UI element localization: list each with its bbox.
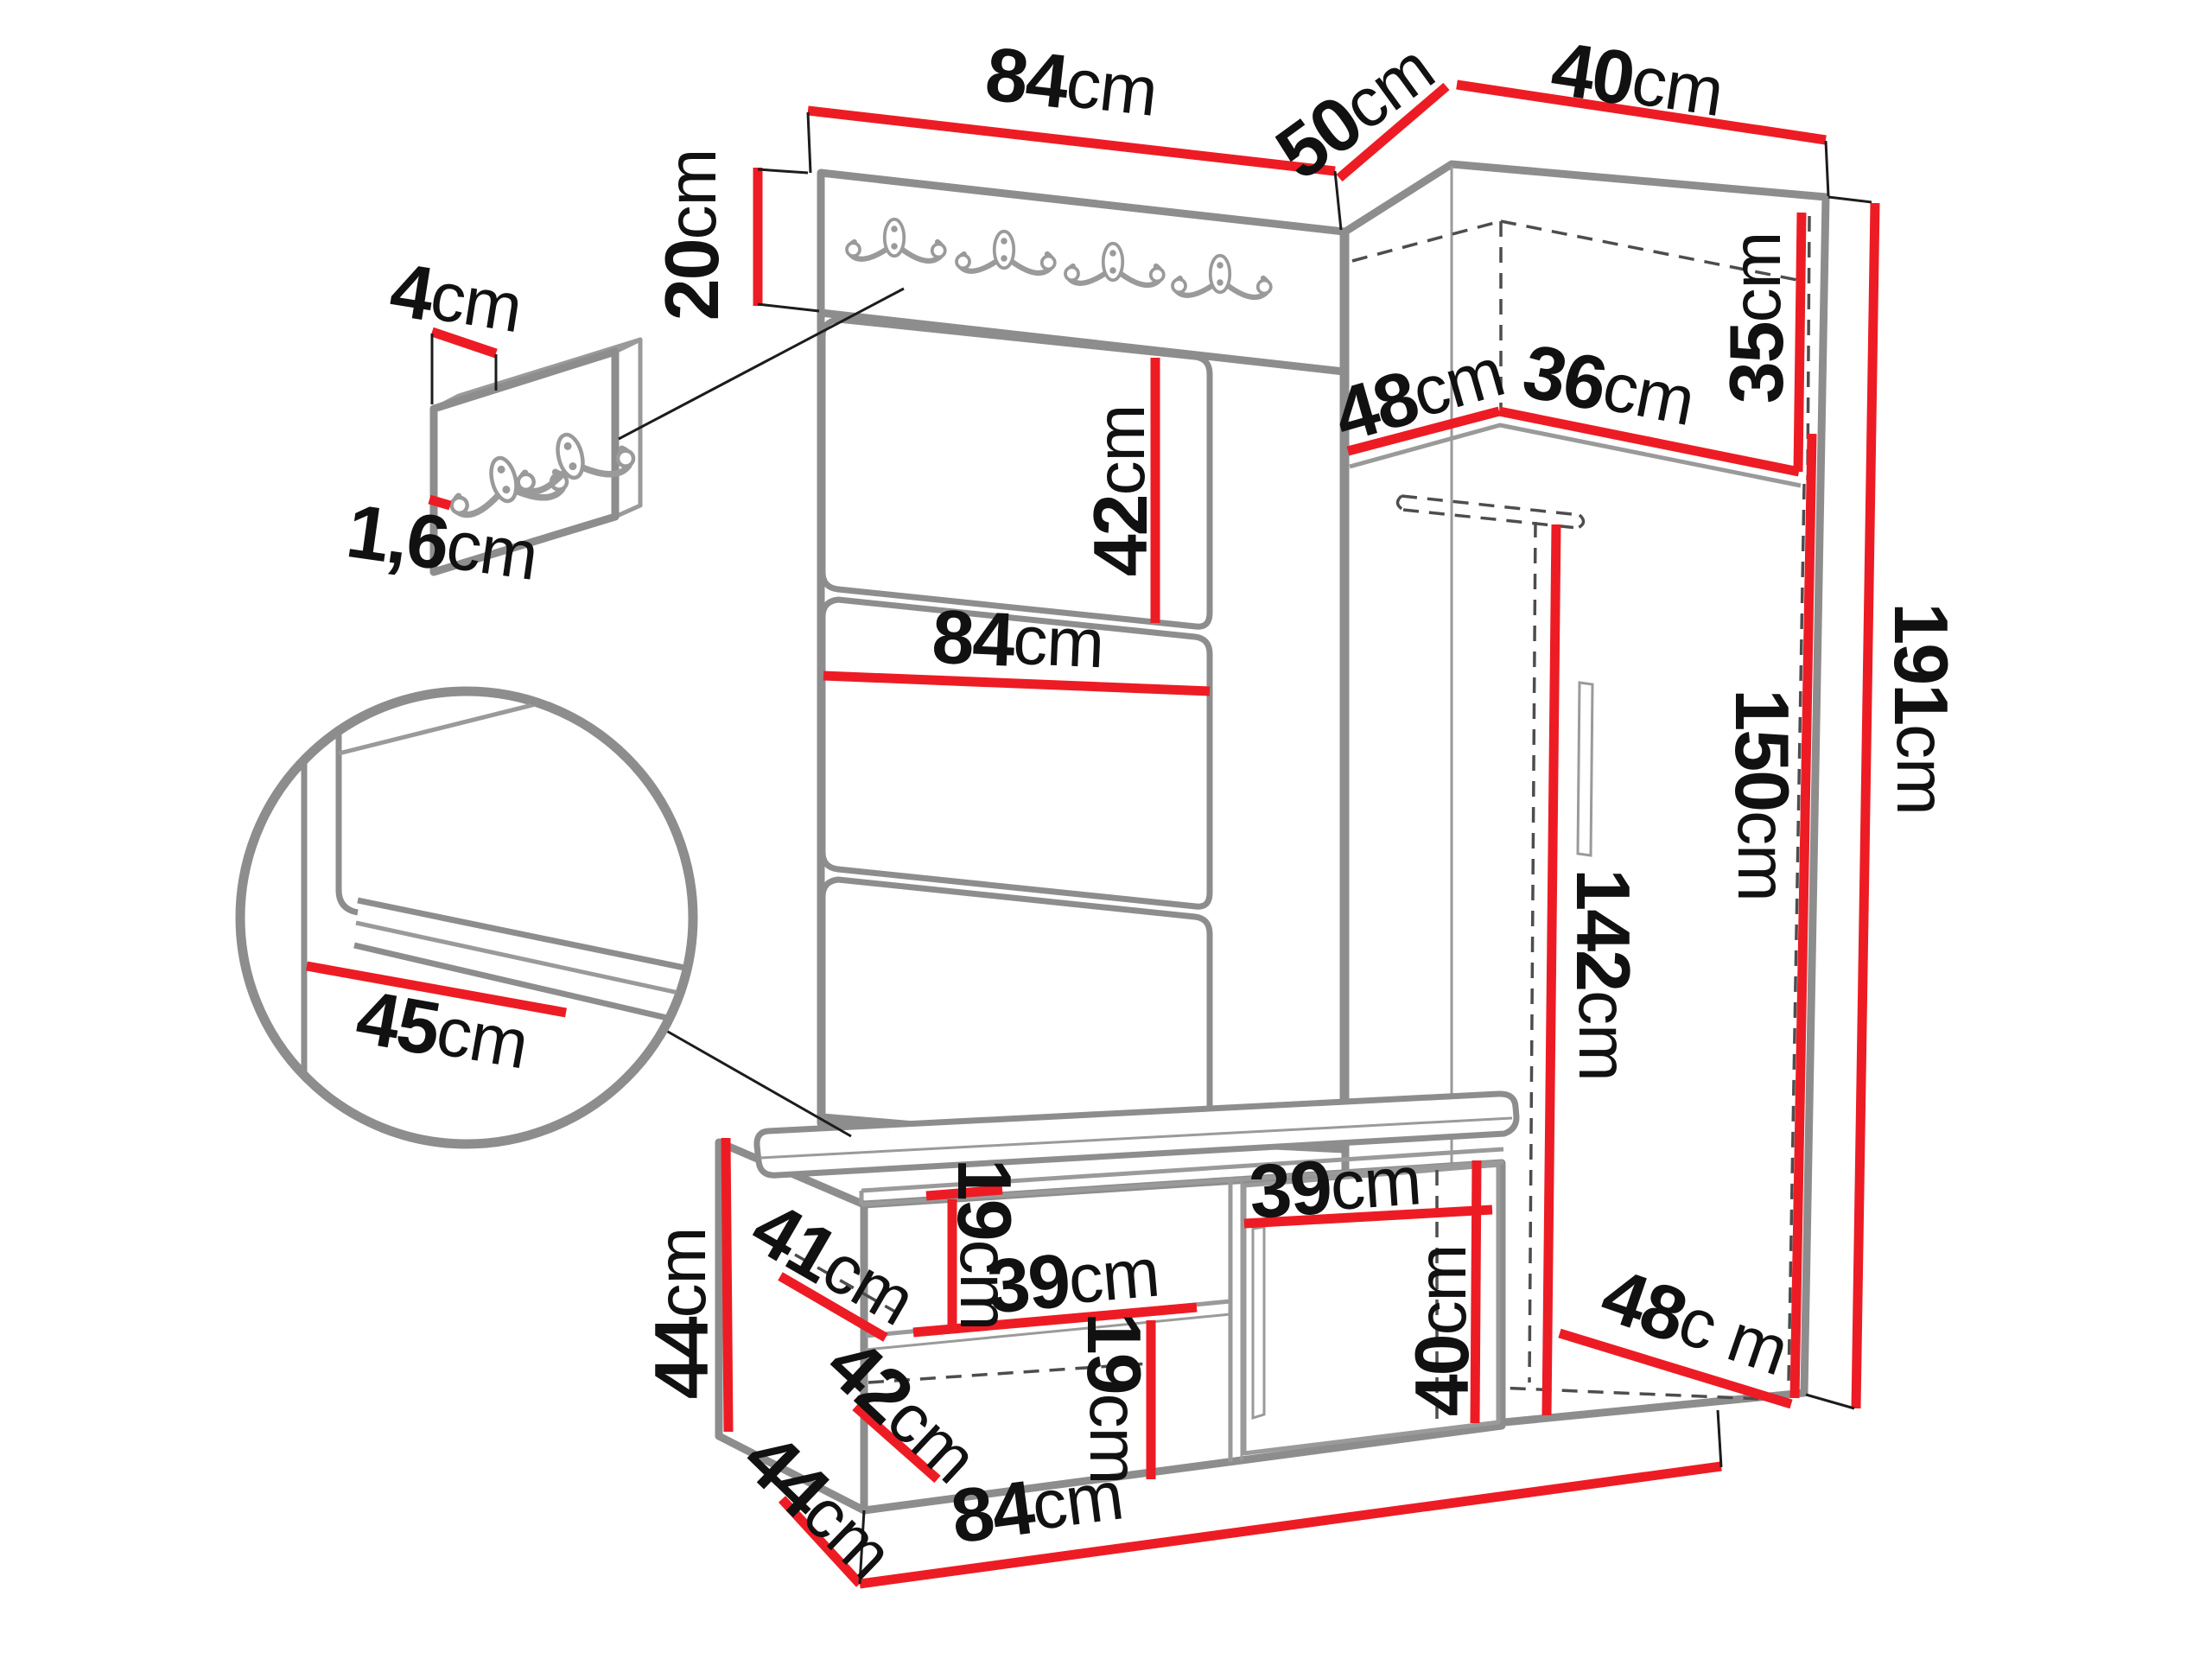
extension-tick xyxy=(1826,141,1828,196)
extension-tick xyxy=(808,112,810,173)
label-interior-height: 150cm xyxy=(1720,689,1806,900)
extension-tick xyxy=(1335,171,1341,230)
detail-zoom-circle xyxy=(240,691,851,1144)
dim-line-191 xyxy=(1856,203,1875,1408)
label-bench-door-height: 40cm xyxy=(1399,1245,1484,1417)
label-door-height: 142cm xyxy=(1561,868,1647,1080)
label-total-height: 191cm xyxy=(1879,602,1965,814)
label-mid-panel-width: 84cm xyxy=(931,593,1106,686)
extension-tick xyxy=(758,304,819,311)
dim-line-44-height xyxy=(726,1138,728,1432)
label-corner-right-width: 40cm xyxy=(1547,24,1729,134)
label-top-compartment-height: 35cm xyxy=(1713,232,1799,404)
extension-tick xyxy=(758,169,808,173)
extension-tick xyxy=(1806,1395,1854,1408)
bench-door-handle xyxy=(1253,1227,1264,1418)
zoom-circle-border xyxy=(240,691,693,1144)
wardrobe-door-handle xyxy=(1578,683,1592,855)
label-cushion-height: 42cm xyxy=(1077,405,1163,577)
dimension-diagram: 84cm 20cm 50cm 40cm 4cm 1,6cm 42cm 48cm … xyxy=(0,0,2212,1659)
label-mini-hook-offset: 4cm xyxy=(385,245,527,350)
label-hook-board-height: 20cm xyxy=(649,149,734,321)
extension-tick xyxy=(1828,197,1872,202)
label-top-panel-width: 84cm xyxy=(982,30,1161,135)
label-bench-door-width: 39cm xyxy=(1247,1137,1424,1235)
dim-line-35 xyxy=(1798,213,1802,472)
extension-tick xyxy=(1718,1410,1721,1467)
label-bench-height: 44cm xyxy=(639,1228,724,1400)
